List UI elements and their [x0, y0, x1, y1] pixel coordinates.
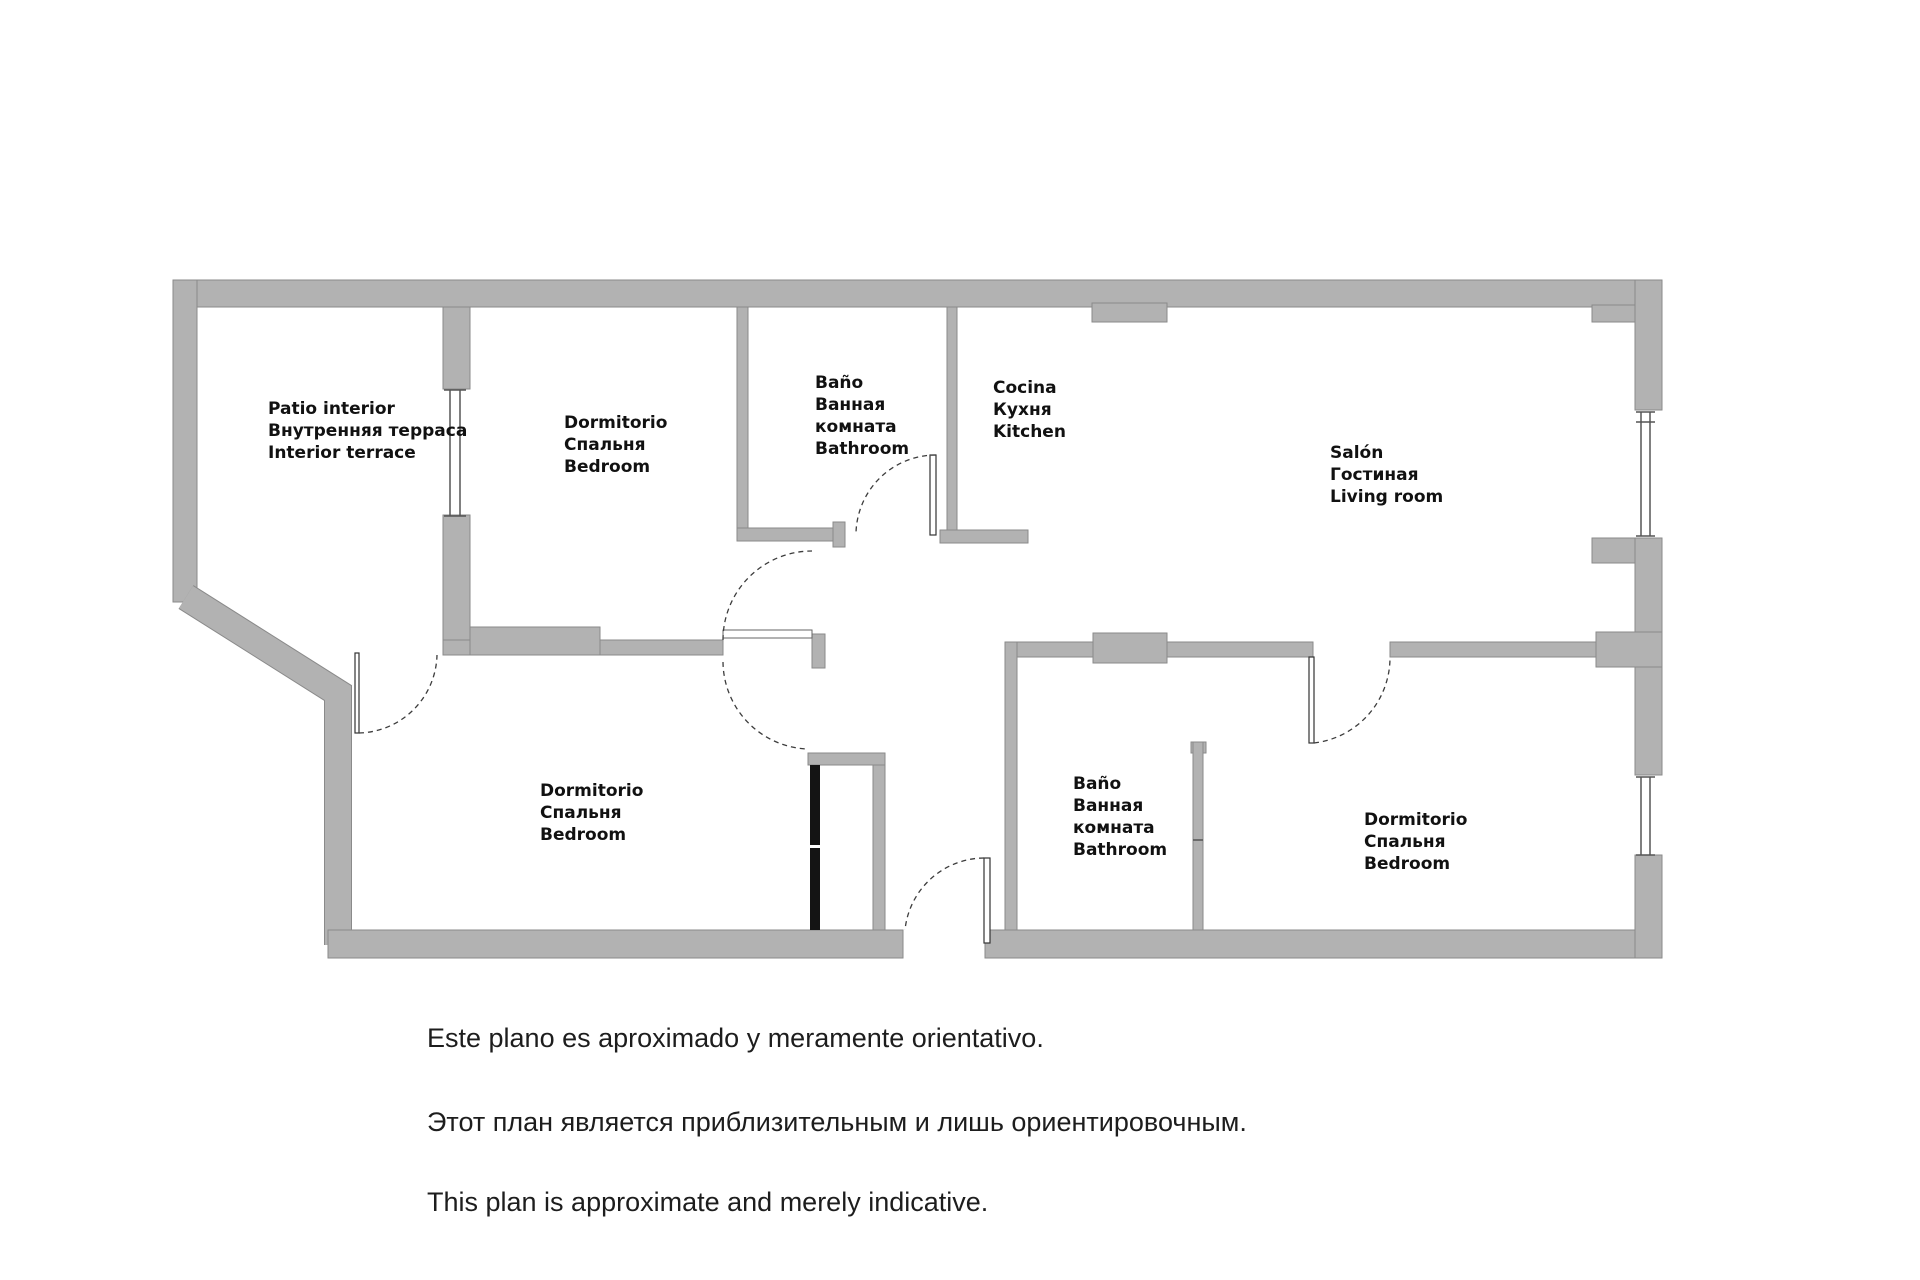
notch-kitchen-salon	[1092, 303, 1167, 322]
room-label-line: Baño	[1073, 773, 1167, 795]
wall-right-lower	[1635, 855, 1662, 958]
room-label-bedroom3: Dormitorio Спальня Bedroom	[1364, 809, 1467, 875]
hall-door-arc-up	[723, 551, 812, 640]
hall-door-arc-down	[723, 662, 807, 749]
room-label-line: Bathroom	[815, 438, 909, 460]
room-label-line: Внутренняя терраса	[268, 420, 467, 442]
wall-bathroom2-left	[1005, 642, 1017, 930]
pier-right	[1592, 538, 1635, 563]
pilaster-top-right	[1592, 305, 1635, 322]
room-label-bedroom1: Dormitorio Спальня Bedroom	[564, 412, 667, 478]
room-label-line: комната	[815, 416, 909, 438]
bathroom1-door-leaf	[930, 455, 936, 535]
room-label-line: Bedroom	[540, 824, 643, 846]
room-label-line: Bathroom	[1073, 839, 1167, 861]
junction-block-right	[1596, 632, 1662, 667]
room-label-line: Спальня	[564, 434, 667, 456]
wall-bathroom1-cap	[833, 522, 845, 547]
bedroom3-door-arc	[1314, 657, 1390, 743]
room-label-line: Ванная	[1073, 795, 1167, 817]
room-label-line: комната	[1073, 817, 1167, 839]
entrance-door-leaf	[984, 858, 990, 943]
shaft-cap	[808, 753, 885, 765]
wall-hall-cap	[812, 634, 825, 668]
disclaimer-ru: Этот план является приблизительным и лиш…	[427, 1106, 1247, 1138]
room-label-line: Cocina	[993, 377, 1066, 399]
room-label-line: Спальня	[540, 802, 643, 824]
room-label-kitchen: Cocina Кухня Kitchen	[993, 377, 1066, 443]
room-label-patio: Patio interior Внутренняя терраса Interi…	[268, 398, 467, 464]
wall-kitchen-stub	[940, 530, 1028, 543]
room-label-line: Dormitorio	[564, 412, 667, 434]
wall-bathroom1-kitchen	[947, 307, 957, 530]
floor-plan-drawing	[0, 0, 1920, 1280]
room-label-line: Salón	[1330, 442, 1443, 464]
wall-bathroom2-top	[1005, 642, 1093, 657]
disclaimer-en: This plan is approximate and merely indi…	[427, 1186, 988, 1218]
wall-patio-bedroom1-upper	[443, 307, 470, 389]
bedroom3-door-leaf	[1309, 657, 1314, 743]
room-label-line: Ванная	[815, 394, 909, 416]
window-salon-right	[1636, 412, 1655, 536]
room-label-line: Спальня	[1364, 831, 1467, 853]
room-label-line: Dormitorio	[1364, 809, 1467, 831]
room-label-line: Baño	[815, 372, 909, 394]
room-label-line: Bedroom	[1364, 853, 1467, 875]
wall-right-upper	[1635, 280, 1662, 410]
room-label-line: Bedroom	[564, 456, 667, 478]
wall-bathroom1-bottom	[737, 528, 833, 541]
wall-patio-bedroom1-lower	[443, 515, 470, 645]
wall-curve	[186, 597, 338, 945]
wall-bottom-left	[328, 930, 903, 958]
room-label-line: Interior terrace	[268, 442, 467, 464]
wall-top	[173, 280, 1662, 307]
wall-bathroom2-divider	[1193, 742, 1203, 930]
hall-door-leaf-open	[723, 630, 812, 638]
patio-door-arc	[359, 655, 437, 733]
wall-bedroom1-bathroom1	[737, 307, 748, 528]
room-label-line: Patio interior	[268, 398, 467, 420]
entrance-door-arc	[905, 858, 984, 930]
room-label-bedroom2: Dormitorio Спальня Bedroom	[540, 780, 643, 846]
bathroom1-door-arc	[856, 455, 936, 533]
patio-door-leaf	[355, 653, 359, 733]
room-label-line: Kitchen	[993, 421, 1066, 443]
room-label-line: Кухня	[993, 399, 1066, 421]
shaft-panel-seam	[810, 845, 820, 848]
pillar-bathroom2	[1093, 633, 1167, 663]
room-label-line: Living room	[1330, 486, 1443, 508]
room-label-line: Гостиная	[1330, 464, 1443, 486]
wall-salon-bedroom3-left	[1167, 642, 1313, 657]
shaft	[808, 753, 885, 930]
window-bedroom3-right	[1636, 777, 1655, 855]
wall-hall-band-thick	[470, 627, 600, 655]
room-label-salon: Salón Гостиная Living room	[1330, 442, 1443, 508]
wall-left	[173, 280, 197, 602]
shaft-right-wall	[873, 765, 885, 930]
disclaimer-es: Este plano es aproximado y meramente ori…	[427, 1022, 1044, 1054]
room-label-bathroom2: Baño Ванная комната Bathroom	[1073, 773, 1167, 861]
wall-bottom-right	[985, 930, 1662, 958]
floor-plan-page: Patio interior Внутренняя терраса Interi…	[0, 0, 1920, 1280]
room-label-bathroom1: Baño Ванная комната Bathroom	[815, 372, 909, 460]
wall-salon-bedroom3-right	[1390, 642, 1596, 657]
room-label-line: Dormitorio	[540, 780, 643, 802]
